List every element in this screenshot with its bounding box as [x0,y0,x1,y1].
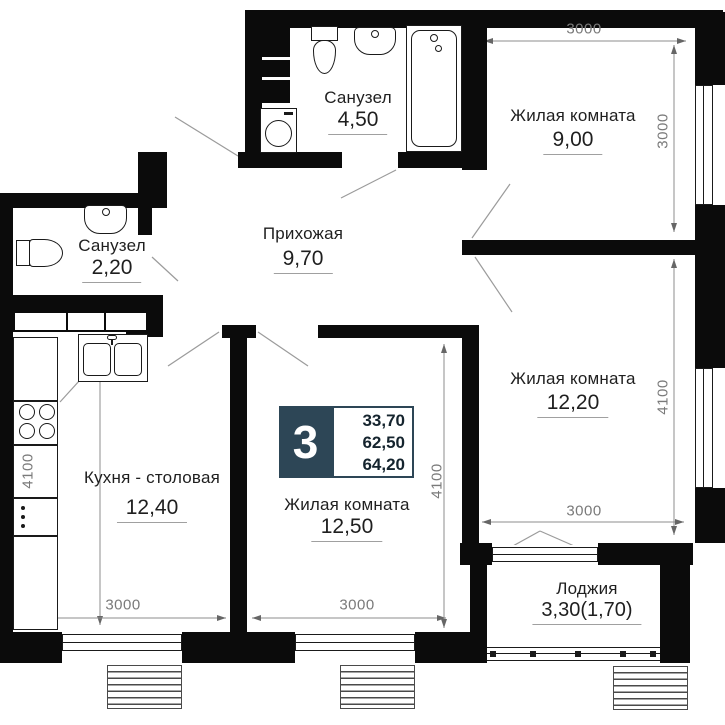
dimension-label: 4100 [20,453,37,488]
room-label-hallway: Прихожая 9,70 [263,224,343,274]
duct-shaft [258,80,290,103]
wardrobe [104,311,148,332]
wall-segment [460,543,492,565]
room-area: 12,40 [117,496,188,523]
window [295,632,415,663]
bathtub-icon [406,25,462,152]
stove-icon [19,423,35,439]
area-total: 64,20 [334,454,405,476]
room-label-loggia: Лоджия 3,30(1,70) [532,579,641,625]
room-name: Прихожая [263,224,343,244]
area-without-loggia: 62,50 [334,432,405,454]
stove-icon [39,404,55,420]
wall-segment [462,325,479,545]
sink-icon [84,205,127,235]
duct-shaft [258,60,290,77]
dimension-label: 3000 [105,597,140,614]
room-area: 9,70 [274,247,333,274]
wall-segment [318,325,479,338]
room-area: 2,20 [83,256,142,283]
room-area: 9,00 [544,128,603,155]
dimension-label: 3000 [339,597,374,614]
room-name: Санузел [78,236,146,256]
room-area: 3,30(1,70) [532,599,641,625]
dimension-label: 3000 [566,21,601,38]
room-name: Лоджия [532,579,641,599]
stove-icon [39,423,55,439]
room-area: 12,50 [312,515,383,542]
wardrobe [13,311,68,332]
duct-shaft [247,15,290,57]
window [693,85,725,205]
wall-segment [238,152,342,168]
window [693,368,725,488]
sink-icon [354,27,396,56]
wall-segment [182,632,295,663]
wall-segment [230,325,247,640]
room-name: Жилая комната [510,369,635,389]
wall-segment [0,632,62,663]
wall-segment [462,240,697,255]
wall-segment [398,152,466,168]
room-area: 4,50 [329,108,388,135]
toilet-icon [310,26,340,76]
wall-segment [0,193,13,663]
room-area: 12,20 [538,391,609,418]
room-label-kitchen: Кухня - столовая 12,40 [84,468,220,523]
room-label-bathroom-top: Санузел 4,50 [324,88,392,135]
area-summary-box: 33,70 62,50 64,20 [332,406,414,478]
stove-icon [19,404,35,420]
wall-segment [462,10,487,170]
window [62,632,182,663]
wardrobe [66,311,106,332]
wall-segment [660,543,690,663]
room-name: Жилая комната [510,106,635,126]
kitchen-sink-icon [78,334,148,382]
dimension-label: 4100 [655,379,672,414]
wall-segment [470,565,487,663]
room-name: Кухня - столовая [84,468,220,488]
rooms-count-badge: 3 [279,406,332,478]
dimension-label: 3000 [566,503,601,520]
room-label-bathroom-left: Санузел 2,20 [78,236,146,283]
balcony-door [492,545,598,565]
dimension-label: 4100 [429,463,446,498]
floor-plan: Санузел 4,50 Жилая комната 9,00 Санузел … [0,0,725,725]
rooms-count: 3 [293,415,319,469]
dimension-label: 3000 [655,113,672,148]
room-name: Жилая комната [284,495,409,515]
wall-segment [695,12,725,85]
radiator [107,665,182,709]
balcony-railing [487,645,660,663]
radiator [613,666,688,710]
wall-segment [138,193,152,235]
radiator [340,665,415,709]
area-living: 33,70 [334,410,405,432]
wall-segment [695,488,725,543]
wall-segment [695,205,725,368]
room-label-living-9: Жилая комната 9,00 [510,106,635,155]
wall-segment [0,193,152,208]
washing-machine-icon [260,108,297,153]
room-label-living-12-2: Жилая комната 12,20 [510,369,635,418]
toilet-icon [16,239,64,268]
room-label-living-12-5: Жилая комната 12,50 [284,495,409,542]
wall-segment [415,632,475,663]
room-name: Санузел [324,88,392,108]
wall-segment [13,295,163,311]
